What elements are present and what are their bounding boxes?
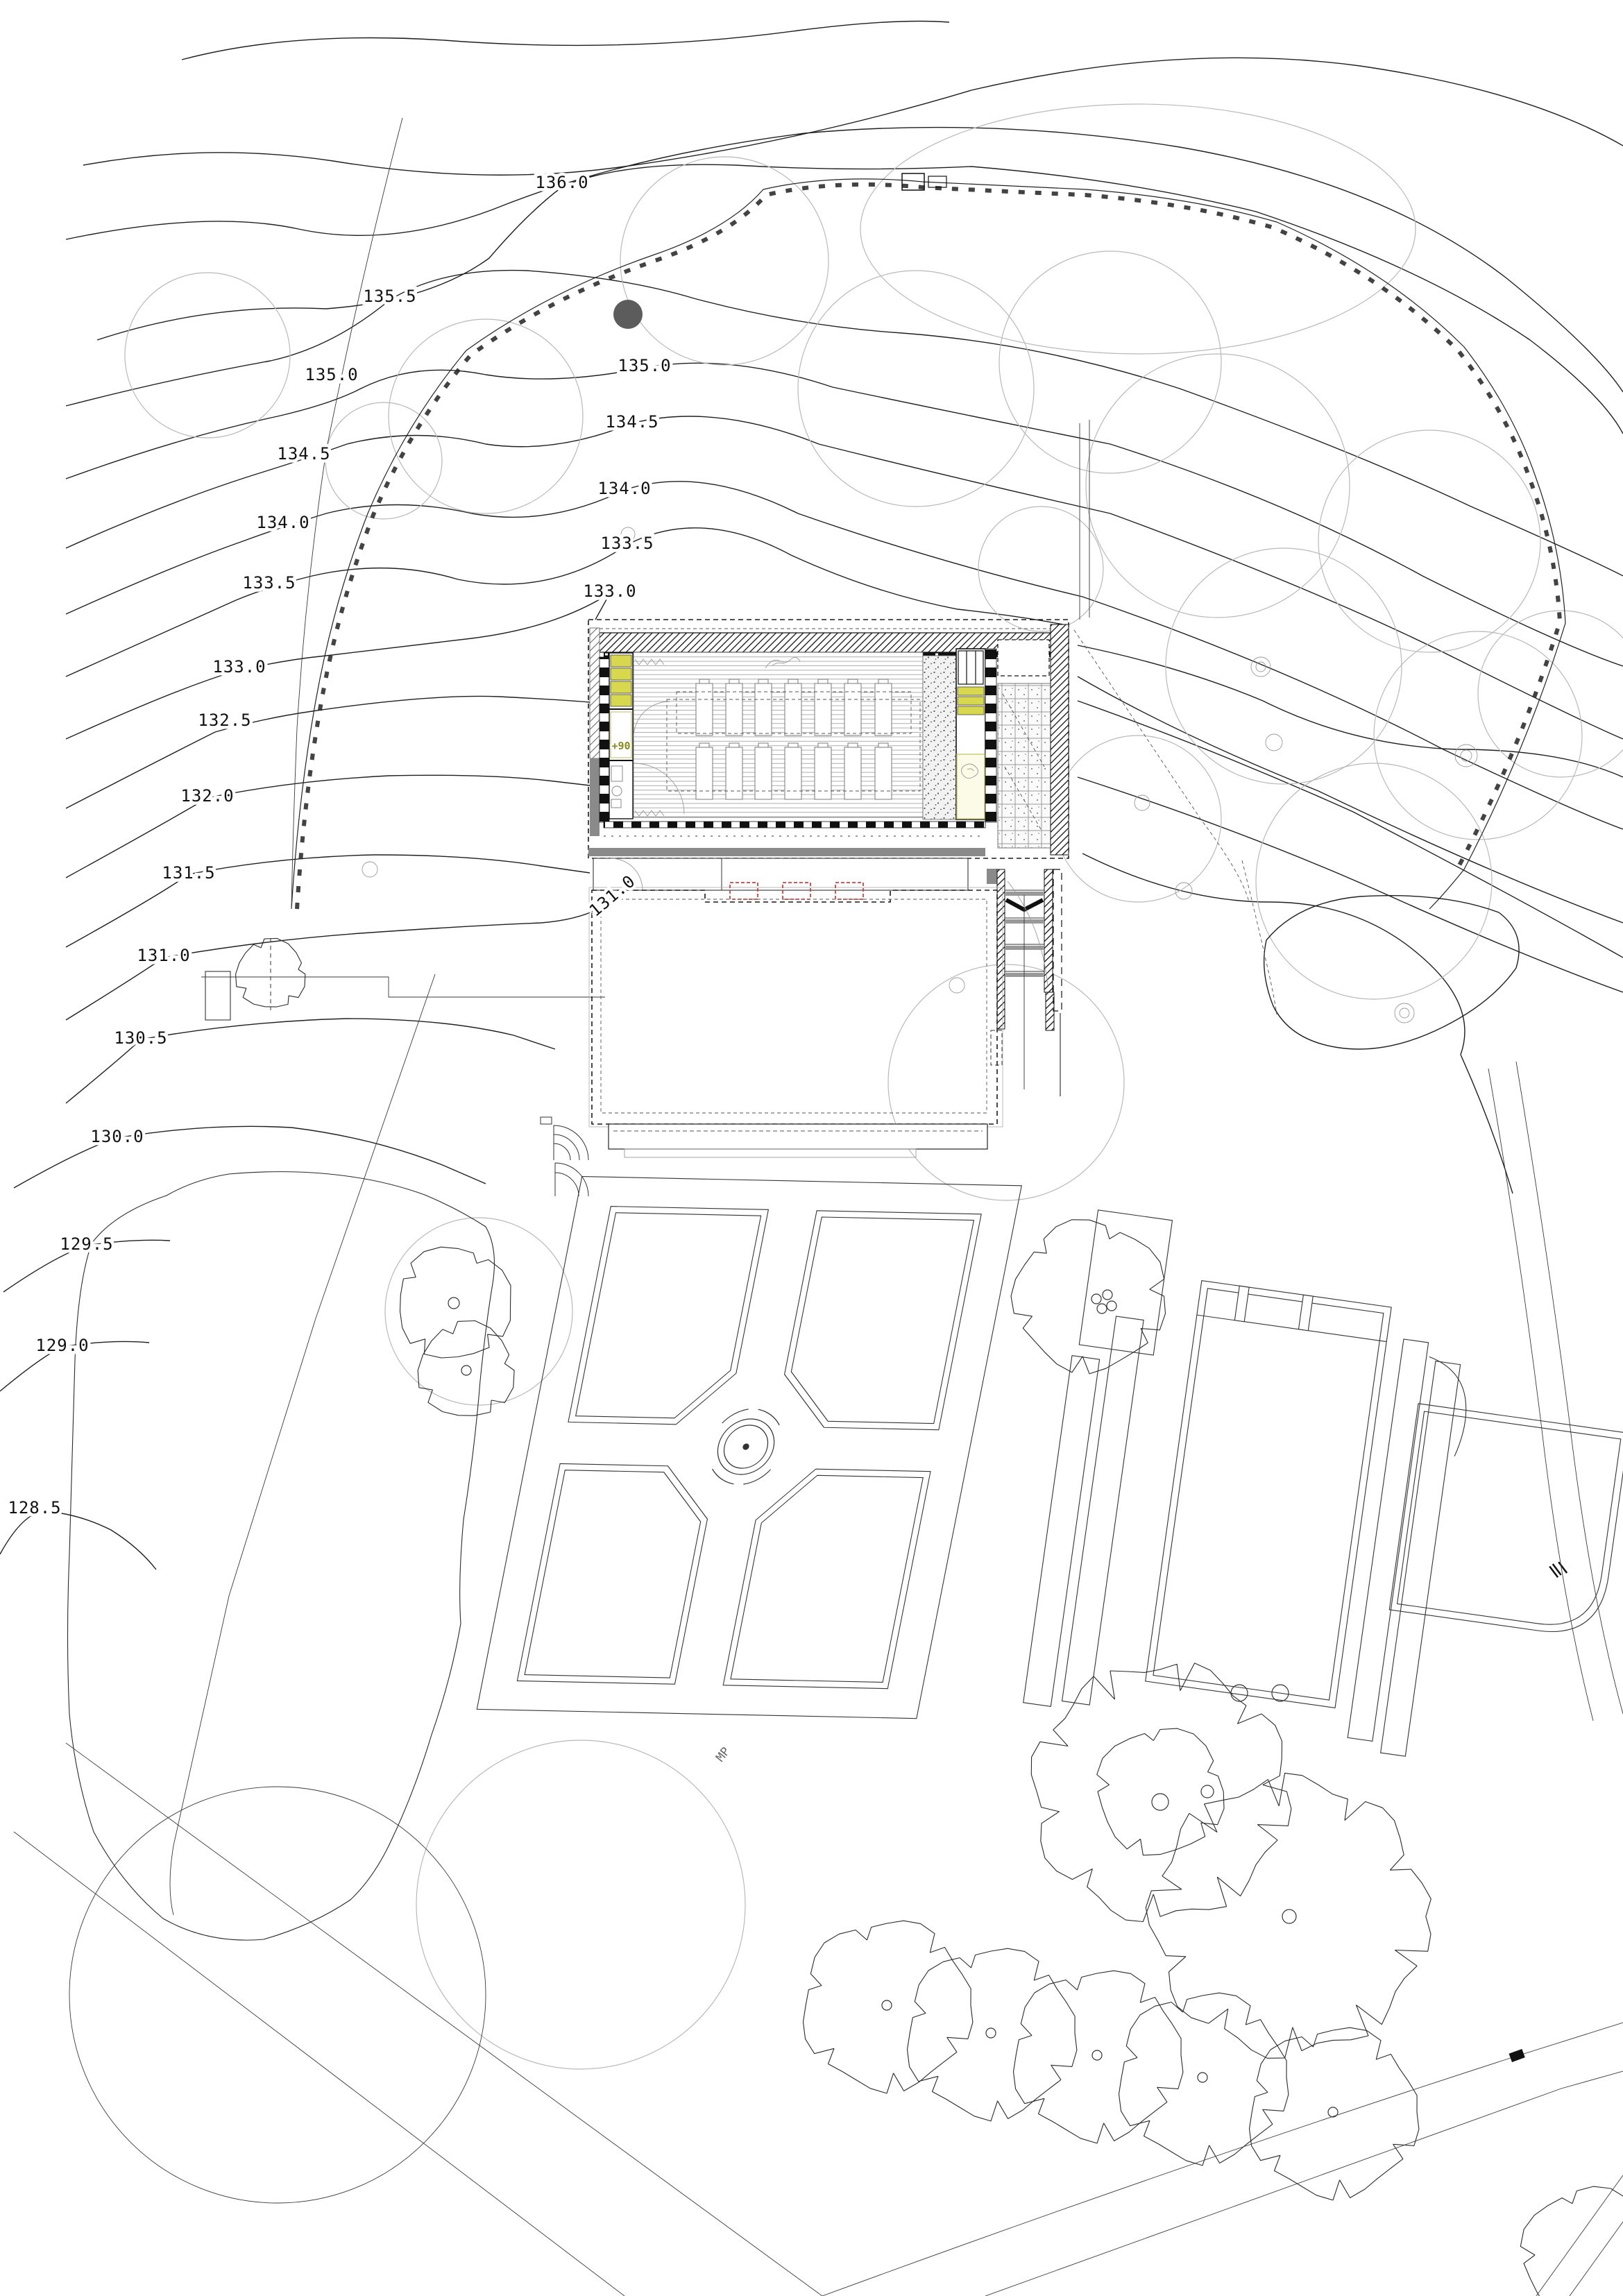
stair-left-rail xyxy=(997,869,1005,1029)
garden-bed xyxy=(774,1211,981,1430)
slope-feather-line xyxy=(1074,630,1249,902)
bottom-terrace-edge xyxy=(588,848,985,856)
contour-130 xyxy=(14,1126,486,1188)
garden-stair xyxy=(987,869,1062,1096)
garden-bed-strip xyxy=(1062,1316,1144,1705)
drain-glyph xyxy=(1548,1561,1568,1579)
garden-monogram: MP xyxy=(713,1745,733,1764)
contour-132-5 xyxy=(66,696,590,808)
contour-label: 128.5 xyxy=(8,1498,61,1517)
contour-label: 132.5 xyxy=(198,711,251,730)
contour-label: 136.0 xyxy=(535,173,588,192)
filled-survey-dot xyxy=(613,300,643,329)
contour-label: 134.5 xyxy=(277,444,330,464)
tree-canopy xyxy=(1250,2027,1419,2200)
tree-canopy xyxy=(1097,1728,1224,1855)
bottom-wall xyxy=(604,822,985,828)
shelf-unit xyxy=(611,695,631,706)
garden-bed-inner xyxy=(782,1217,974,1424)
contour-label: 134.0 xyxy=(256,513,309,532)
contour-label: 134.5 xyxy=(605,412,658,432)
tree-canopies-gray xyxy=(69,104,1623,2203)
shelf-unit xyxy=(611,668,631,680)
left-room-column: +90 xyxy=(609,653,633,819)
contour-132 xyxy=(66,775,590,878)
retaining-walls xyxy=(201,938,605,1020)
formal-garden xyxy=(477,1177,1021,1719)
loggia-band xyxy=(593,858,968,890)
lawn-oval xyxy=(68,1172,495,1940)
trees xyxy=(400,1220,1623,2296)
garden-bed-inner xyxy=(731,1474,923,1683)
roads xyxy=(14,1743,1623,2296)
contour-label: 130.5 xyxy=(114,1028,167,1048)
contour-label: 133.5 xyxy=(600,534,654,553)
garden-bed-strip xyxy=(1348,1339,1428,1741)
garden-boundary xyxy=(477,1177,1021,1719)
shelf-unit xyxy=(611,681,631,693)
contour-label: 133.5 xyxy=(242,573,296,593)
contour-label: 133.0 xyxy=(212,657,266,677)
roof-tab xyxy=(991,1030,1002,1065)
lower-terrace xyxy=(609,1124,987,1149)
kitchen-garden xyxy=(1023,1209,1488,1758)
right-wall-columns xyxy=(985,649,996,822)
tree-canopy xyxy=(1520,2186,1623,2296)
contour-133 xyxy=(66,593,610,739)
gravel-band xyxy=(923,656,956,819)
tree-canopy xyxy=(418,1321,514,1416)
main-building: +90 xyxy=(588,620,1069,858)
left-wall-columns xyxy=(600,657,609,822)
contour-131-5 xyxy=(66,855,590,947)
roof-dashed-outline xyxy=(592,890,997,1124)
contour-label: 135.0 xyxy=(305,365,358,384)
contour-label: 135.5 xyxy=(363,287,416,306)
paved-court xyxy=(998,683,1051,848)
left-outer-wall-gray xyxy=(590,758,600,836)
perimeter-hedge xyxy=(170,118,1565,1915)
site-plan-drawing: +90 xyxy=(0,0,1623,2296)
contour-label: 131.5 xyxy=(162,863,215,883)
contour-label: 134.0 xyxy=(597,479,651,498)
entry-court xyxy=(998,640,1049,676)
garden-bed xyxy=(517,1463,717,1684)
east-wall-hatched xyxy=(1051,624,1069,855)
central-fountain xyxy=(710,1409,783,1485)
tree-canopy xyxy=(908,1948,1077,2121)
garden-bed xyxy=(568,1207,768,1426)
garden-bed-strip xyxy=(1079,1210,1172,1355)
tree-canopy xyxy=(1119,1993,1289,2166)
tree-canopy xyxy=(1014,1971,1183,2143)
contour-label: 133.0 xyxy=(583,581,636,601)
contour-label: 132.0 xyxy=(180,786,234,806)
gate-mark xyxy=(1509,2049,1525,2062)
greenhouse xyxy=(1146,1281,1391,1708)
garden-entry-steps xyxy=(541,1117,588,1196)
contour-labels: 136.0 135.5 135.0 134.5 134.0 133.5 133.… xyxy=(8,173,671,1517)
greenhouse-inner xyxy=(1153,1289,1384,1700)
kidney-bed xyxy=(1242,860,1519,1193)
tree-canopy xyxy=(1146,1773,1431,2058)
tree-canopy xyxy=(400,1247,511,1358)
stair-right-rail xyxy=(1044,869,1053,992)
tree-canopy xyxy=(804,1921,973,2093)
right-room-column xyxy=(956,649,985,819)
east-paths xyxy=(1488,1062,1623,1721)
contour-label: 130.0 xyxy=(90,1127,144,1146)
garden-bed-strip xyxy=(1023,1356,1100,1707)
contour-label: 129.5 xyxy=(60,1234,113,1254)
lower-building xyxy=(589,858,1003,1157)
garden-bed xyxy=(723,1468,931,1689)
site-plan-sheet: +90 xyxy=(0,0,1623,2296)
contour-128-5 xyxy=(0,1511,156,1570)
lift-label: +90 xyxy=(611,740,630,752)
hedge-row xyxy=(236,938,305,1010)
contour-label: 131.0 xyxy=(137,946,190,965)
contour-label: 135.0 xyxy=(618,356,671,375)
left-outer-wall xyxy=(590,628,600,758)
tree-trunks xyxy=(448,1290,1338,2117)
east-fence-posts xyxy=(1053,869,1062,1011)
contour-label: 129.0 xyxy=(35,1336,89,1355)
tree-canopy xyxy=(1011,1220,1166,1374)
shelf-unit xyxy=(611,655,631,667)
